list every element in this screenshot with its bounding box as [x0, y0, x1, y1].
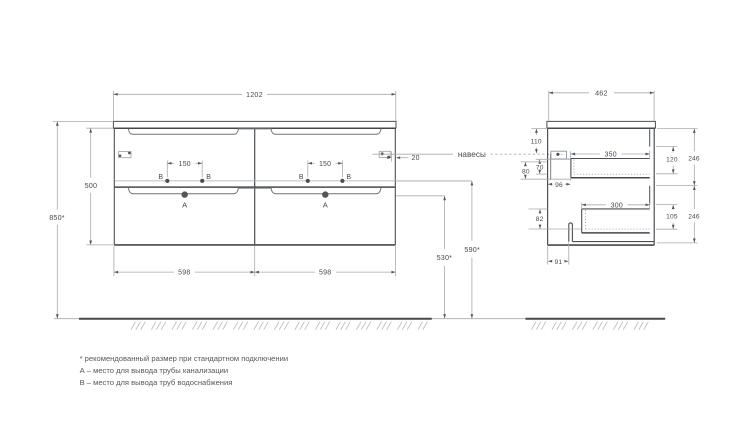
svg-text:91: 91	[555, 259, 563, 266]
svg-text:246: 246	[688, 213, 700, 220]
svg-text:150: 150	[319, 161, 331, 168]
svg-text:120: 120	[666, 157, 678, 164]
svg-text:96: 96	[555, 182, 563, 189]
svg-text:598: 598	[319, 270, 331, 277]
svg-text:500: 500	[85, 181, 98, 190]
svg-text:82: 82	[536, 216, 544, 223]
svg-text:A: A	[182, 201, 187, 210]
svg-text:110: 110	[531, 139, 542, 146]
svg-text:598: 598	[178, 270, 190, 277]
svg-text:300: 300	[611, 202, 623, 209]
svg-text:150: 150	[179, 161, 191, 168]
svg-text:70: 70	[536, 164, 544, 171]
svg-text:462: 462	[595, 88, 608, 97]
svg-text:A: A	[323, 201, 328, 210]
svg-text:навесы: навесы	[458, 150, 486, 159]
svg-text:* рекомендованный размер при с: * рекомендованный размер при стандартном…	[80, 354, 288, 363]
svg-text:20: 20	[412, 155, 420, 162]
svg-text:105: 105	[666, 213, 678, 220]
svg-text:350: 350	[605, 152, 617, 159]
svg-text:850*: 850*	[49, 213, 65, 222]
svg-text:1202: 1202	[246, 90, 263, 99]
svg-text:B: B	[299, 174, 304, 181]
svg-text:В – место для вывода труб водо: В – место для вывода труб водоснабжения	[80, 378, 233, 387]
svg-text:B: B	[158, 174, 163, 181]
svg-text:B: B	[346, 174, 351, 181]
svg-text:246: 246	[688, 156, 700, 163]
svg-text:530*: 530*	[437, 253, 453, 262]
svg-text:590*: 590*	[464, 245, 480, 254]
svg-text:B: B	[206, 174, 211, 181]
svg-text:80: 80	[522, 168, 530, 175]
svg-text:А – место для вывода трубы кан: А – место для вывода трубы канализации	[80, 366, 229, 375]
